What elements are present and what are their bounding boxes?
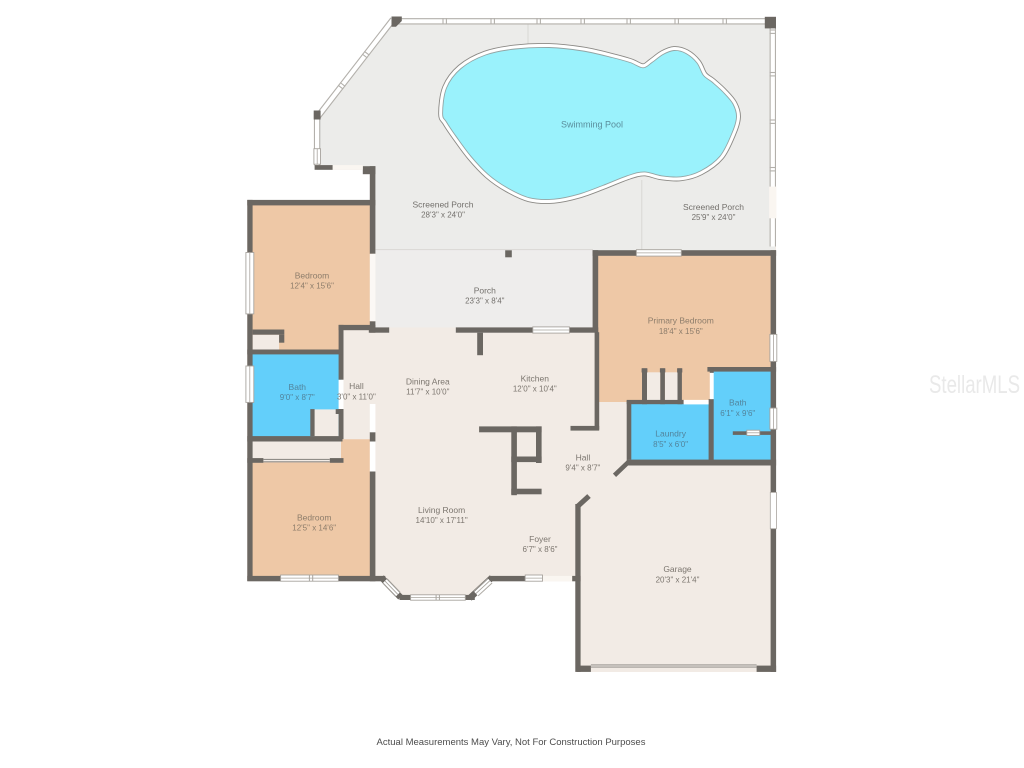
svg-text:Screened Porch: Screened Porch: [413, 200, 474, 210]
svg-text:Laundry: Laundry: [655, 429, 686, 439]
svg-text:12'5" x 14'6": 12'5" x 14'6": [292, 524, 336, 533]
svg-text:20'3" x 21'4": 20'3" x 21'4": [656, 575, 700, 584]
svg-text:Kitchen: Kitchen: [521, 373, 550, 383]
svg-text:12'0" x 10'4": 12'0" x 10'4": [513, 385, 557, 394]
svg-text:Living Room: Living Room: [418, 505, 465, 515]
svg-text:Bath: Bath: [729, 398, 747, 408]
svg-text:8'5" x 6'0": 8'5" x 6'0": [653, 440, 688, 449]
svg-text:28'3" x 24'0": 28'3" x 24'0": [421, 211, 465, 220]
svg-text:Bedroom: Bedroom: [295, 270, 330, 280]
svg-text:18'4" x 15'6": 18'4" x 15'6": [659, 327, 703, 336]
svg-text:Swimming Pool: Swimming Pool: [561, 120, 623, 130]
svg-text:14'10" x 17'11": 14'10" x 17'11": [416, 516, 468, 525]
svg-text:6'7" x 8'6": 6'7" x 8'6": [523, 545, 558, 554]
svg-text:9'0" x 8'7": 9'0" x 8'7": [280, 393, 315, 402]
svg-text:StellarMLS: StellarMLS: [929, 371, 1020, 399]
svg-text:6'1" x 9'6": 6'1" x 9'6": [720, 409, 755, 418]
svg-text:Porch: Porch: [474, 286, 496, 296]
svg-text:23'3" x 8'4": 23'3" x 8'4": [465, 297, 505, 306]
svg-text:Hall: Hall: [576, 453, 591, 463]
svg-text:Bath: Bath: [289, 382, 307, 392]
svg-text:11'7" x 10'0": 11'7" x 10'0": [406, 388, 449, 397]
svg-text:12'4" x 15'6": 12'4" x 15'6": [290, 282, 334, 291]
svg-text:Actual Measurements May Vary,: Actual Measurements May Vary, Not For Co…: [377, 737, 646, 748]
svg-text:Bedroom: Bedroom: [297, 512, 332, 522]
svg-text:Primary Bedroom: Primary Bedroom: [648, 316, 714, 326]
svg-text:Hall: Hall: [349, 381, 364, 391]
svg-text:9'4" x 8'7": 9'4" x 8'7": [565, 464, 600, 473]
svg-text:3'0" x 11'0": 3'0" x 11'0": [337, 392, 376, 401]
svg-text:Screened Porch: Screened Porch: [683, 202, 744, 212]
svg-text:Garage: Garage: [663, 564, 692, 574]
svg-text:Foyer: Foyer: [529, 534, 551, 544]
svg-text:Dining Area: Dining Area: [406, 376, 450, 386]
svg-text:25'9" x 24'0": 25'9" x 24'0": [692, 213, 736, 222]
